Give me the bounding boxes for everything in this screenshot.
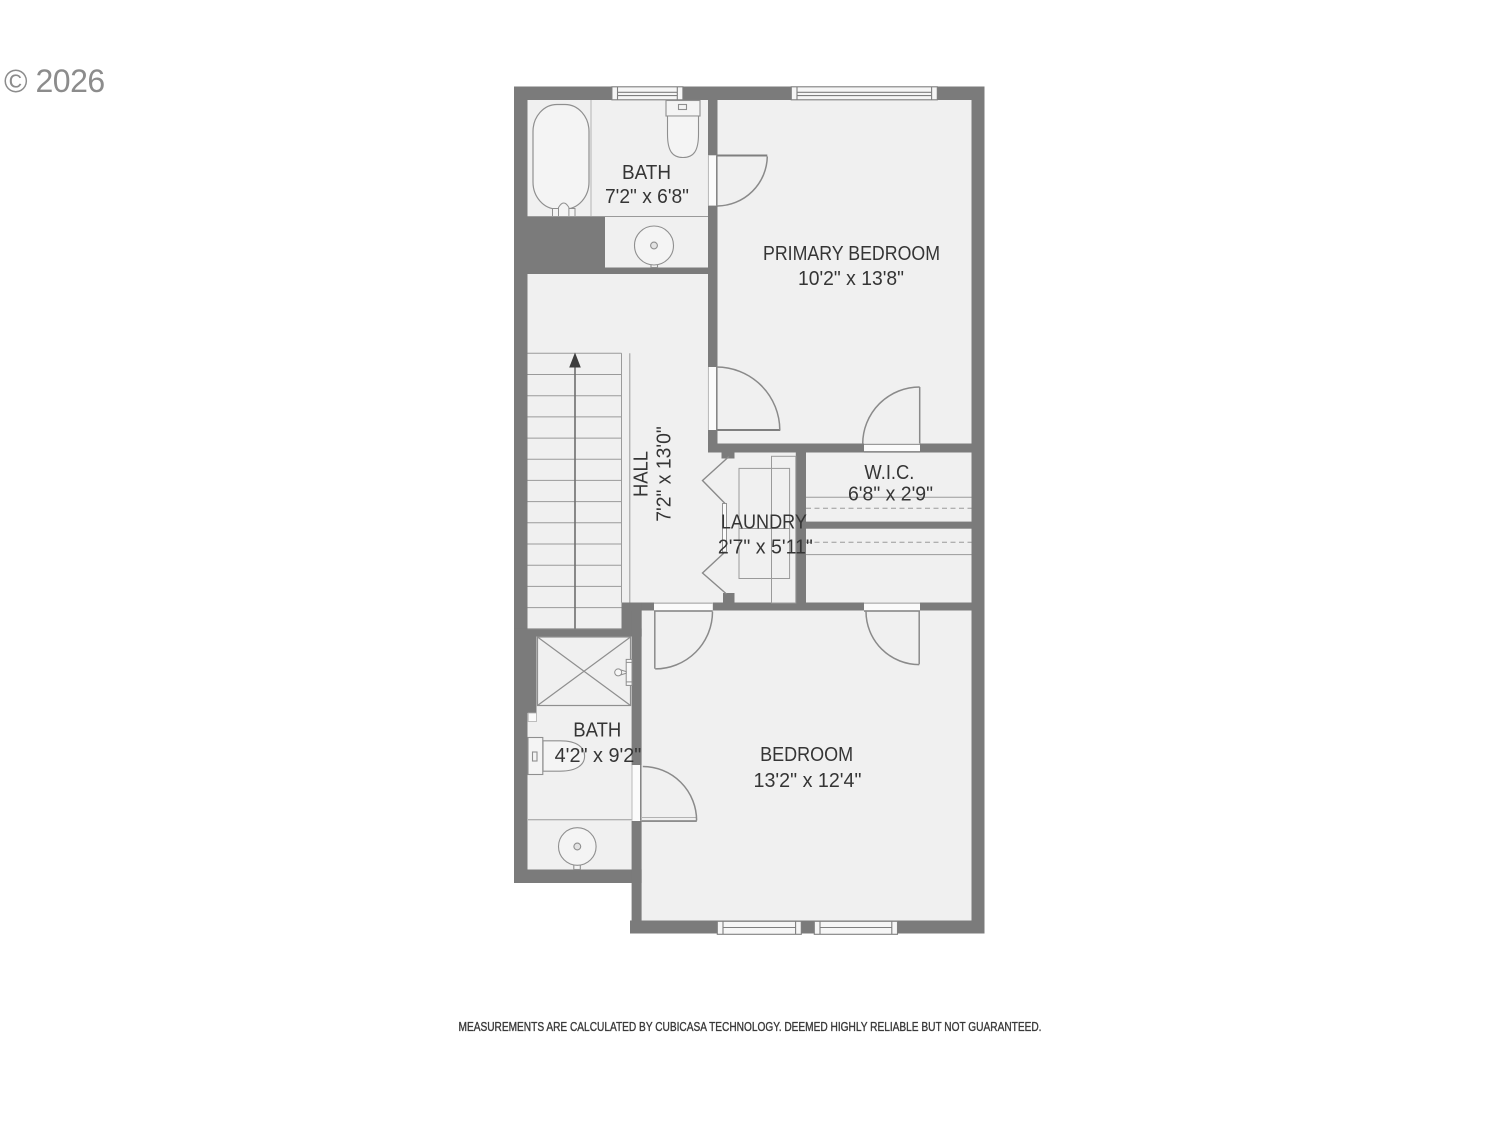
svg-text:7'2" x 6'8": 7'2" x 6'8" <box>605 185 689 208</box>
svg-text:MEASUREMENTS ARE CALCULATED BY: MEASUREMENTS ARE CALCULATED BY CUBICASA … <box>459 1020 1042 1034</box>
svg-text:W.I.C.: W.I.C. <box>864 461 914 484</box>
svg-text:BATH: BATH <box>573 719 621 742</box>
svg-text:7'2" x 13'0": 7'2" x 13'0" <box>653 426 676 522</box>
svg-text:© 2026: © 2026 <box>4 63 105 99</box>
svg-text:BEDROOM: BEDROOM <box>760 743 853 766</box>
svg-text:LAUNDRY: LAUNDRY <box>721 511 807 534</box>
svg-text:10'2" x 13'8": 10'2" x 13'8" <box>798 267 904 290</box>
svg-text:4'2" x 9'2": 4'2" x 9'2" <box>555 744 642 767</box>
svg-text:6'8" x 2'9": 6'8" x 2'9" <box>848 483 933 506</box>
svg-text:BATH: BATH <box>622 161 671 184</box>
svg-text:2'7" x 5'11": 2'7" x 5'11" <box>718 535 813 558</box>
svg-text:PRIMARY BEDROOM: PRIMARY BEDROOM <box>763 242 940 265</box>
svg-text:13'2" x 12'4": 13'2" x 12'4" <box>754 769 862 792</box>
svg-text:HALL: HALL <box>630 451 653 497</box>
